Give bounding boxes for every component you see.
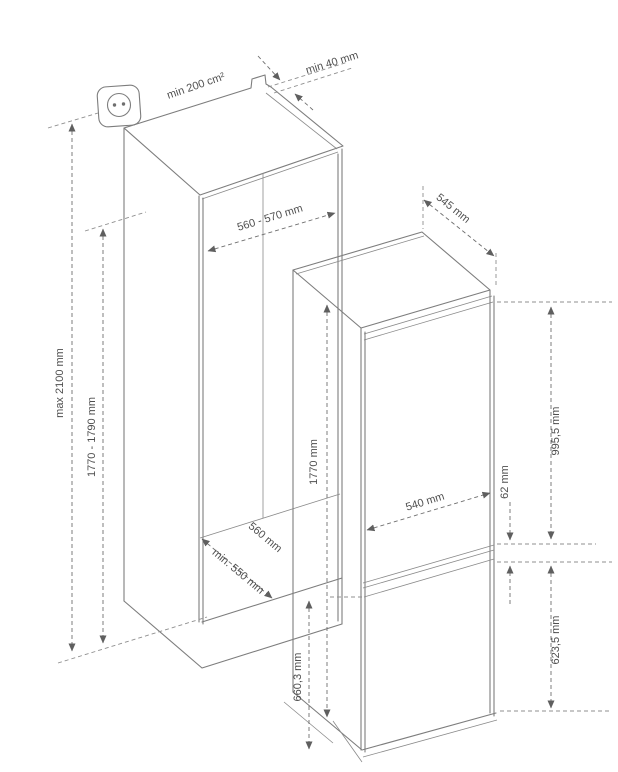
door-top-edges [364, 296, 493, 340]
diagram-canvas: min 200 cm² min 40 mm max 2100 mm 1770 -… [0, 0, 618, 772]
niche-floor-front-edge [202, 578, 342, 622]
niche-back-bottom-edge [200, 494, 340, 538]
rear-gap-arrow-bottom [295, 94, 313, 110]
height-label: 1770 mm [308, 439, 320, 485]
socket-pin-right [122, 102, 125, 105]
cabinet-outline [124, 75, 343, 668]
niche-height-label: 1770 - 1790 mm [86, 397, 98, 477]
niche-width-label: 560 - 570 mm [236, 202, 304, 233]
door-left-edge [361, 328, 365, 752]
ventilation-area-label: min 200 cm² [165, 71, 226, 102]
lower-door-height-label: 623,5 mm [550, 616, 562, 665]
cabinet-top-rear-lip [266, 93, 337, 149]
appliance-dimensions: 545 mm 1770 mm 540 mm 62 mm 995,5 mm 623… [292, 186, 612, 749]
depth-label: 545 mm [434, 191, 472, 225]
appliance-base-edge [363, 720, 497, 757]
lower-section-height-label: 660,3 mm [292, 653, 304, 702]
cabinet-top-face [124, 75, 343, 195]
appliance-top-lip [296, 236, 424, 274]
appliance-outline [284, 232, 497, 762]
rear-gap-label: min 40 mm [304, 49, 360, 76]
width-label: 540 mm [404, 491, 446, 514]
niche-top-reference [85, 212, 146, 231]
door-divider-band [363, 545, 494, 597]
appliance-top-face [293, 232, 490, 328]
appliance-base-corner [284, 702, 362, 762]
upper-door-height-label: 995,5 mm [550, 407, 562, 456]
installation-diagram: min 200 cm² min 40 mm max 2100 mm 1770 -… [0, 0, 618, 772]
niche-bottom-reference [58, 617, 207, 663]
power-socket-icon [48, 85, 141, 128]
socket-lead-line [48, 113, 98, 128]
cabinet-right-edge [338, 149, 342, 624]
socket-pin-left [113, 103, 116, 106]
horizontal-reference-lines [330, 302, 612, 711]
cabinet-opening-top-inner [202, 152, 338, 199]
cabinet-dimensions: min 200 cm² min 40 mm max 2100 mm 1770 -… [54, 49, 360, 663]
overall-height-label: max 2100 mm [54, 348, 66, 418]
door-gap-label: 62 mm [499, 465, 511, 499]
appliance-right-edge [490, 290, 494, 716]
niche-depth-label: min. 550 mm [210, 547, 266, 597]
socket-round [108, 94, 131, 117]
floor-depth-label: 560 mm [246, 520, 284, 555]
cabinet-opening-left-edge [199, 196, 203, 624]
socket-plate [97, 85, 142, 128]
depth-extension-lines [423, 186, 496, 287]
appliance-bottom-edges [293, 692, 496, 750]
